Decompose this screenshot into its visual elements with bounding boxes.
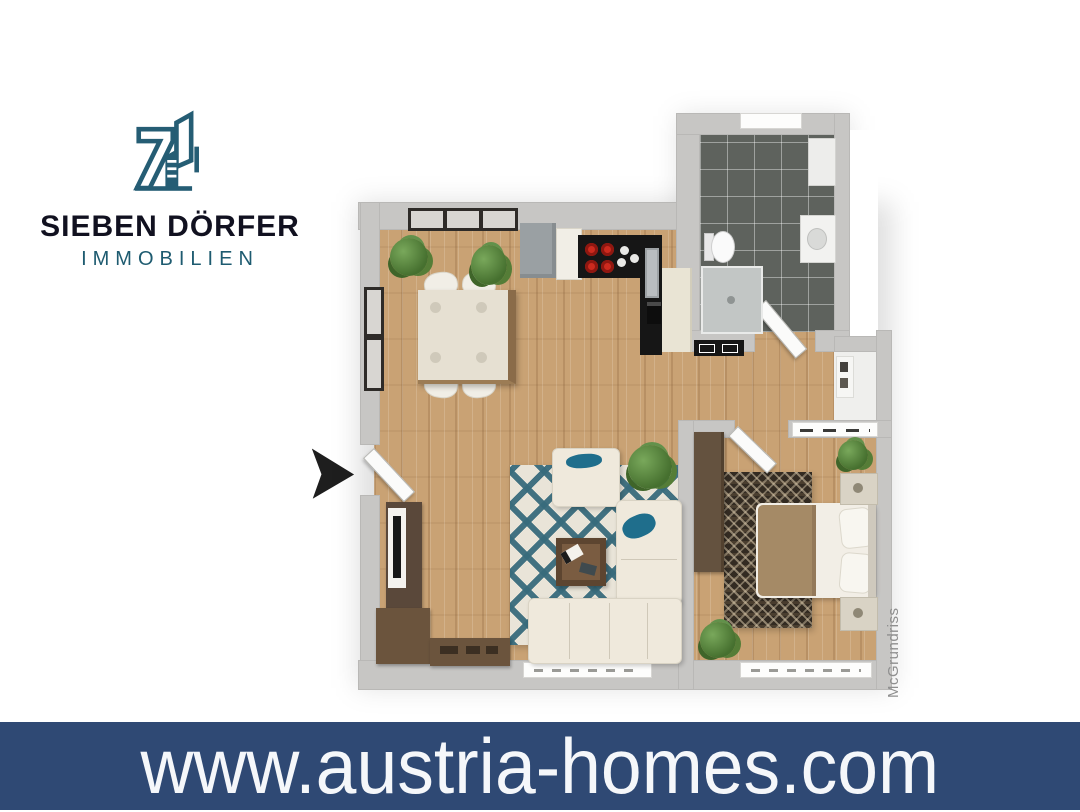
website-banner: www.austria-homes.com xyxy=(0,722,1080,810)
skylight-window xyxy=(444,208,482,231)
shelf-item xyxy=(840,362,848,372)
floor-plan: McGrundriss xyxy=(355,110,920,700)
table-detail xyxy=(430,352,441,363)
headboard xyxy=(868,503,876,598)
nightstand xyxy=(840,473,878,505)
wardrobe xyxy=(694,432,724,572)
shower xyxy=(701,266,763,334)
outside-mask xyxy=(850,130,878,336)
seven-buildings-logo-icon xyxy=(124,108,216,200)
nightstand-decor xyxy=(853,608,863,618)
nightstand-decor xyxy=(853,483,863,493)
skylight-window xyxy=(480,208,518,231)
sideboard xyxy=(430,638,510,666)
kitchen-counter-top xyxy=(578,235,644,278)
teal-pillow xyxy=(565,452,602,469)
living-room-window xyxy=(523,662,652,678)
shelf-item xyxy=(840,378,848,388)
bathroom-vanity xyxy=(800,215,836,263)
drawer-front xyxy=(722,344,738,353)
kitchen-sink xyxy=(645,248,659,298)
brand-subtitle: IMMOBILIEN xyxy=(35,248,305,271)
hob-burner xyxy=(601,260,614,273)
table-detail xyxy=(476,352,487,363)
entrance-arrow-icon xyxy=(308,449,355,502)
hall-cabinet xyxy=(694,340,744,356)
bedroom-top-window xyxy=(792,422,878,437)
cushion-seam xyxy=(621,559,677,560)
table-detail xyxy=(430,302,441,313)
kitchen-peninsula xyxy=(662,268,692,352)
bedroom-bottom-window xyxy=(740,662,872,678)
oven xyxy=(647,302,661,324)
tv-console xyxy=(386,502,422,620)
cushion-seam xyxy=(569,603,570,659)
left-wall-window xyxy=(364,287,384,337)
hob-burner xyxy=(585,243,598,256)
hall-shelf xyxy=(836,356,854,398)
plant xyxy=(390,238,428,276)
sideboard-item xyxy=(440,646,458,654)
nightstand xyxy=(840,597,878,631)
plant xyxy=(628,445,672,489)
website-url: www.austria-homes.com xyxy=(141,721,940,812)
table-tray xyxy=(560,544,583,564)
hob-burner xyxy=(601,243,614,256)
coffee-table xyxy=(556,538,606,586)
sideboard-item xyxy=(466,646,480,654)
bathroom-cabinet xyxy=(808,138,836,186)
tv-screen xyxy=(393,516,401,578)
bathroom-wall-right xyxy=(834,113,850,352)
vanity-sink xyxy=(807,228,827,250)
table-decor xyxy=(579,562,597,576)
brand-name: SIEBEN DÖRFER xyxy=(35,210,305,244)
brand-logo: SIEBEN DÖRFER IMMOBILIEN xyxy=(35,108,305,271)
bathroom-window xyxy=(740,113,802,129)
toilet xyxy=(711,231,735,263)
watermark: McGrundriss xyxy=(885,563,902,698)
sideboard xyxy=(376,608,430,664)
hob-burner xyxy=(585,260,598,273)
palm-plant xyxy=(700,622,736,658)
table-detail xyxy=(476,302,487,313)
sofa xyxy=(528,598,682,664)
sink-knob xyxy=(630,254,639,263)
fridge xyxy=(520,223,556,278)
sink-knob xyxy=(620,246,629,255)
armchair xyxy=(552,448,620,507)
sink-knob xyxy=(617,258,626,267)
dining-table xyxy=(418,290,516,384)
left-wall-window xyxy=(364,337,384,391)
palm-plant xyxy=(471,245,507,285)
plant xyxy=(838,440,868,470)
shower-drain xyxy=(727,296,735,304)
skylight-window xyxy=(408,208,446,231)
bed-blanket xyxy=(758,505,816,596)
drawer-front xyxy=(699,344,715,353)
bed xyxy=(756,503,874,598)
sideboard-item xyxy=(486,646,498,654)
chaise-lounge xyxy=(616,500,682,604)
cushion-seam xyxy=(609,603,610,659)
cushion-seam xyxy=(647,603,648,659)
teal-pillow xyxy=(619,509,659,542)
